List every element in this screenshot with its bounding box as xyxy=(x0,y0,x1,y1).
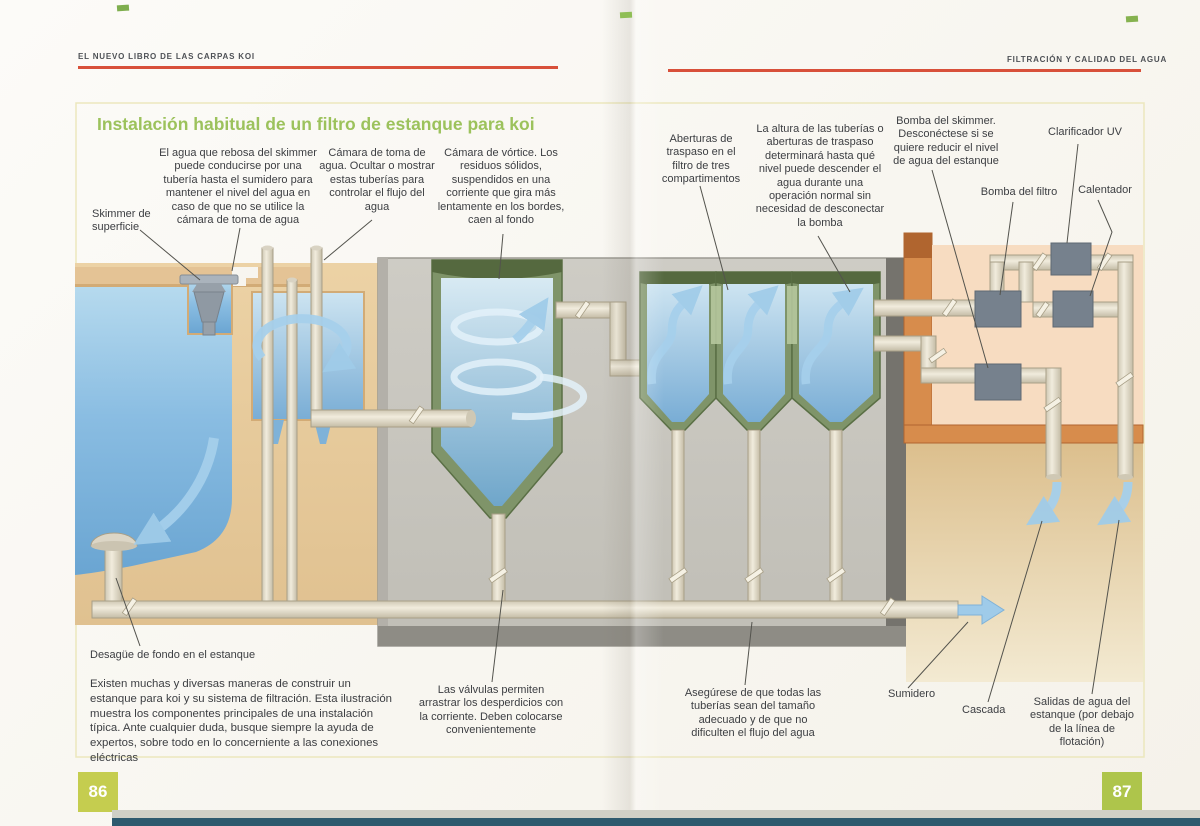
page-number-left: 86 xyxy=(78,772,118,812)
page-edge-mark xyxy=(117,5,129,12)
book-bottom-edge xyxy=(112,818,1200,826)
book-bottom-sliver xyxy=(112,810,1200,818)
heater-box xyxy=(1053,291,1093,327)
book-spread: EL NUEVO LIBRO DE LAS CARPAS KOI FILTRAC… xyxy=(0,0,1200,826)
label-valves: Las válvulas permiten arrastrar los desp… xyxy=(416,684,566,738)
page-edge-mark xyxy=(1126,16,1138,23)
transfer-opening xyxy=(711,286,721,344)
label-filter-pump: Bomba del filtro xyxy=(978,186,1060,199)
pump-panel xyxy=(932,245,1143,425)
label-heater: Calentador xyxy=(1074,184,1136,197)
label-vortex-chamber: Cámara de vórtice. Los residuos sólidos,… xyxy=(436,147,566,227)
label-pond-outlets: Salidas de agua del estanque (por debajo… xyxy=(1026,696,1138,750)
label-uv-clarifier: Clarificador UV xyxy=(1042,126,1128,139)
page-number-right: 87 xyxy=(1102,772,1142,812)
label-skimmer-pump: Bomba del skimmer. Desconéctese si se qu… xyxy=(893,115,999,169)
label-overflow-pipe: El agua que rebosa del skimmer puede con… xyxy=(158,147,318,227)
label-intake-chamber: Cámara de toma de agua. Ocultar o mostra… xyxy=(318,147,436,214)
label-sump: Sumidero xyxy=(888,688,950,701)
uv-clarifier-box xyxy=(1051,243,1091,275)
label-bottom-drain: Desagüe de fondo en el estanque xyxy=(90,649,320,662)
footer-paragraph: Existen muchas y diversas maneras de con… xyxy=(90,677,392,766)
label-transfer-openings: Aberturas de traspaso en el filtro de tr… xyxy=(658,133,744,187)
label-surface-skimmer: Skimmer de superficie xyxy=(92,208,156,235)
label-pipe-size: Asegúrese de que todas las tuberías sean… xyxy=(683,687,823,741)
label-waterfall: Cascada xyxy=(962,704,1018,717)
transfer-opening xyxy=(787,286,797,344)
skimmer-pump-box xyxy=(975,364,1021,400)
filter-pump-box xyxy=(975,291,1021,327)
label-pipe-height: La altura de las tuberías o aberturas de… xyxy=(754,123,886,230)
page-edge-mark xyxy=(620,12,632,19)
